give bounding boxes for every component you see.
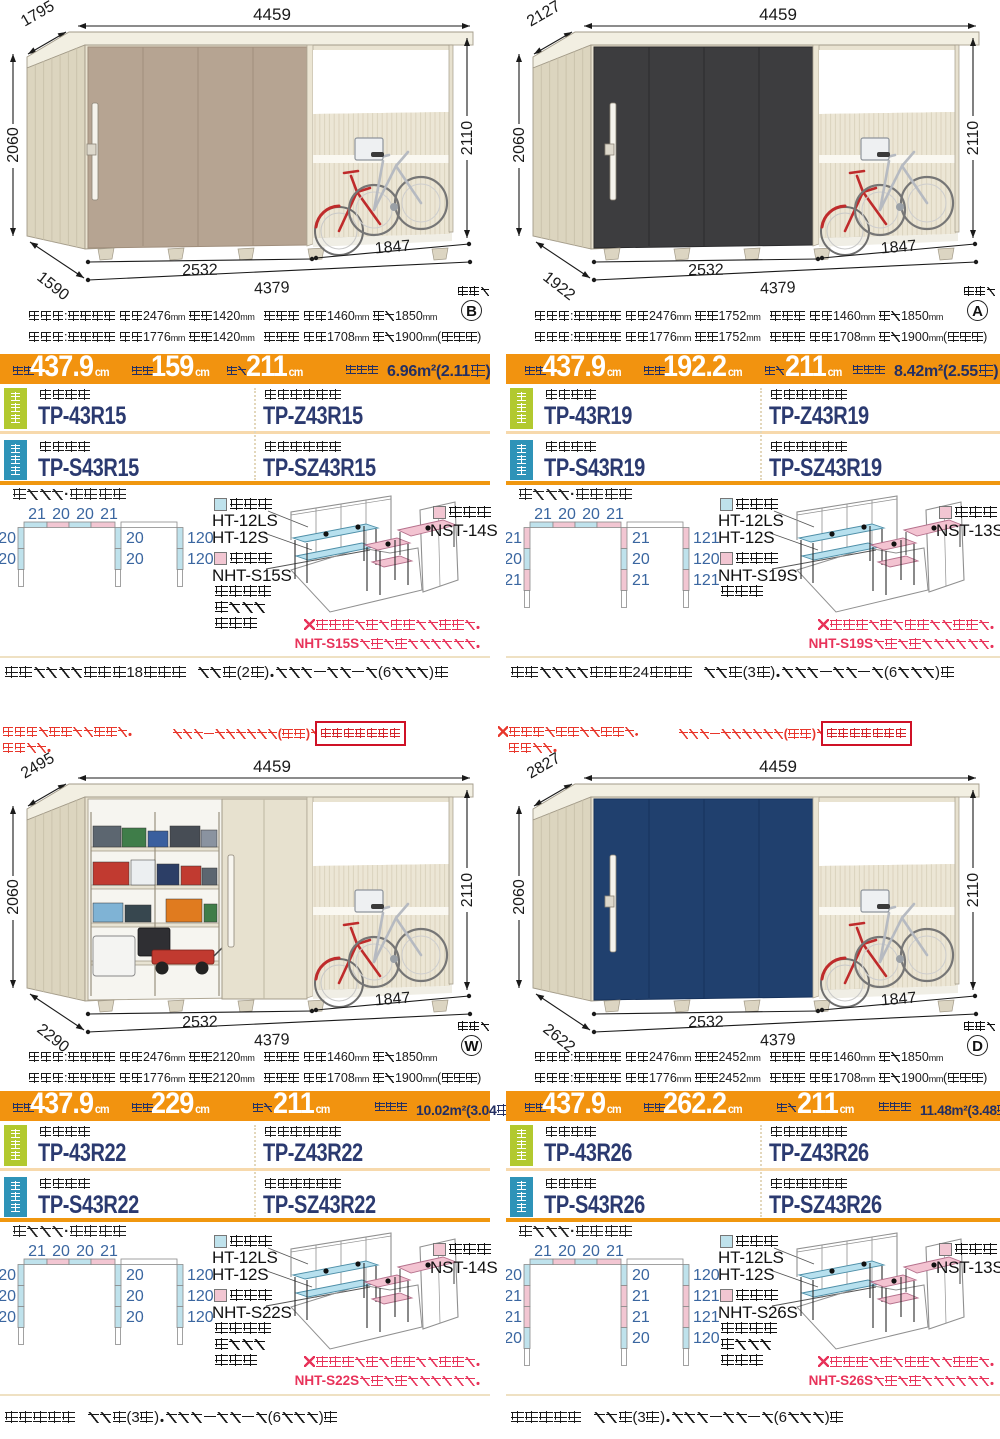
svg-text:1847: 1847	[880, 237, 917, 257]
svg-text:20: 20	[0, 1288, 16, 1305]
svg-text:20: 20	[52, 1243, 70, 1260]
svg-text:4459: 4459	[253, 5, 291, 24]
svg-text:120: 120	[187, 530, 214, 547]
svg-text:120: 120	[187, 1267, 214, 1284]
svg-text:20: 20	[0, 530, 16, 547]
svg-text:20: 20	[506, 1267, 522, 1284]
svg-text:21: 21	[534, 1243, 552, 1260]
svg-text:20: 20	[0, 551, 16, 568]
svg-text:120: 120	[187, 1309, 214, 1326]
svg-text:21: 21	[100, 1243, 118, 1260]
svg-text:20: 20	[126, 530, 144, 547]
svg-text:1922: 1922	[540, 269, 579, 304]
svg-text:4379: 4379	[760, 279, 796, 298]
svg-text:2060: 2060	[511, 127, 528, 163]
svg-text:1847: 1847	[880, 989, 917, 1009]
svg-text:120: 120	[693, 1330, 720, 1347]
svg-text:21: 21	[606, 506, 624, 523]
svg-text:21: 21	[534, 506, 552, 523]
svg-text:20: 20	[126, 1288, 144, 1305]
svg-text:20: 20	[632, 551, 650, 568]
svg-text:21: 21	[506, 572, 522, 589]
svg-text:20: 20	[582, 506, 600, 523]
svg-text:20: 20	[506, 1330, 522, 1347]
svg-text:21: 21	[632, 1288, 650, 1305]
svg-text:20: 20	[52, 506, 70, 523]
svg-text:4379: 4379	[760, 1031, 796, 1050]
svg-text:20: 20	[582, 1243, 600, 1260]
svg-text:2532: 2532	[688, 262, 724, 280]
svg-text:120: 120	[187, 1288, 214, 1305]
svg-text:20: 20	[0, 1309, 16, 1326]
svg-text:121: 121	[693, 1309, 720, 1326]
svg-text:20: 20	[506, 551, 522, 568]
svg-text:1847: 1847	[374, 989, 411, 1009]
svg-text:20: 20	[558, 1243, 576, 1260]
svg-text:2060: 2060	[511, 879, 528, 915]
svg-text:20: 20	[126, 1267, 144, 1284]
svg-text:121: 121	[693, 572, 720, 589]
svg-text:2110: 2110	[459, 873, 476, 908]
svg-text:21: 21	[28, 506, 46, 523]
svg-text:21: 21	[28, 1243, 46, 1260]
svg-text:4379: 4379	[254, 279, 290, 298]
svg-text:20: 20	[0, 1267, 16, 1284]
svg-text:1847: 1847	[374, 237, 411, 257]
svg-text:2495: 2495	[18, 752, 57, 782]
svg-text:4459: 4459	[759, 5, 797, 24]
svg-text:21: 21	[100, 506, 118, 523]
svg-text:2060: 2060	[5, 879, 22, 915]
svg-text:20: 20	[76, 506, 94, 523]
svg-text:2532: 2532	[182, 1014, 218, 1032]
svg-text:20: 20	[558, 506, 576, 523]
svg-text:2110: 2110	[965, 121, 982, 156]
svg-text:2127: 2127	[524, 0, 563, 30]
svg-text:4459: 4459	[253, 757, 291, 776]
svg-text:20: 20	[632, 1267, 650, 1284]
svg-text:120: 120	[187, 551, 214, 568]
svg-text:2060: 2060	[5, 127, 22, 163]
svg-text:120: 120	[693, 551, 720, 568]
svg-text:21: 21	[632, 1309, 650, 1326]
svg-text:1590: 1590	[34, 269, 73, 304]
svg-text:1795: 1795	[18, 0, 57, 30]
svg-text:2532: 2532	[688, 1014, 724, 1032]
svg-text:2110: 2110	[965, 873, 982, 908]
svg-text:21: 21	[632, 530, 650, 547]
svg-text:4459: 4459	[759, 757, 797, 776]
svg-text:20: 20	[126, 1309, 144, 1326]
svg-text:20: 20	[76, 1243, 94, 1260]
svg-text:121: 121	[693, 530, 720, 547]
svg-text:21: 21	[506, 530, 522, 547]
svg-text:4379: 4379	[254, 1031, 290, 1050]
svg-text:21: 21	[606, 1243, 624, 1260]
svg-text:21: 21	[632, 572, 650, 589]
svg-text:2532: 2532	[182, 262, 218, 280]
svg-text:2110: 2110	[459, 121, 476, 156]
svg-text:2827: 2827	[524, 752, 563, 782]
svg-text:21: 21	[506, 1288, 522, 1305]
svg-text:20: 20	[126, 551, 144, 568]
svg-text:20: 20	[632, 1330, 650, 1347]
svg-text:21: 21	[506, 1309, 522, 1326]
svg-text:120: 120	[693, 1267, 720, 1284]
svg-text:121: 121	[693, 1288, 720, 1305]
